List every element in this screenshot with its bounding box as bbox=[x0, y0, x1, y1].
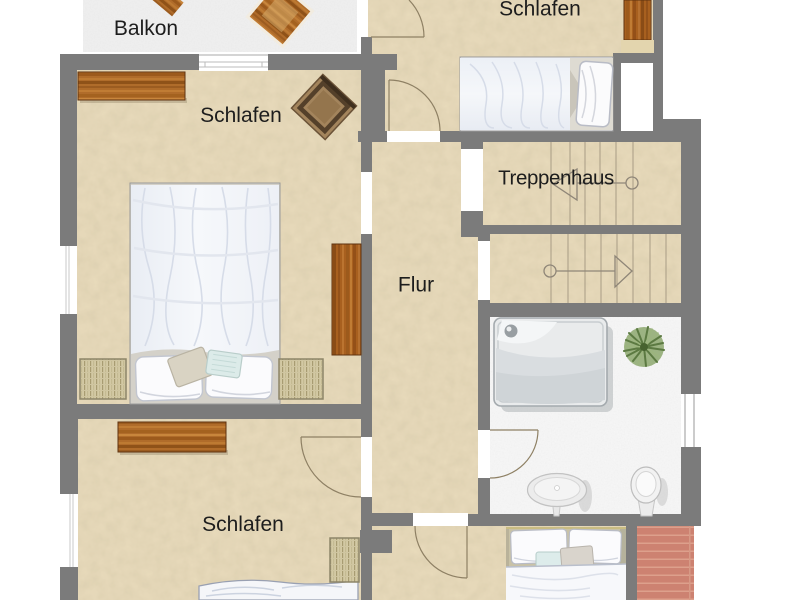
svg-text:Schlafen: Schlafen bbox=[499, 0, 581, 21]
svg-text:Flur: Flur bbox=[398, 274, 434, 297]
svg-text:Balkon: Balkon bbox=[114, 17, 178, 40]
svg-text:Schlafen: Schlafen bbox=[202, 513, 284, 536]
svg-text:Treppenhaus: Treppenhaus bbox=[498, 167, 614, 190]
svg-text:Schlafen: Schlafen bbox=[200, 104, 282, 127]
